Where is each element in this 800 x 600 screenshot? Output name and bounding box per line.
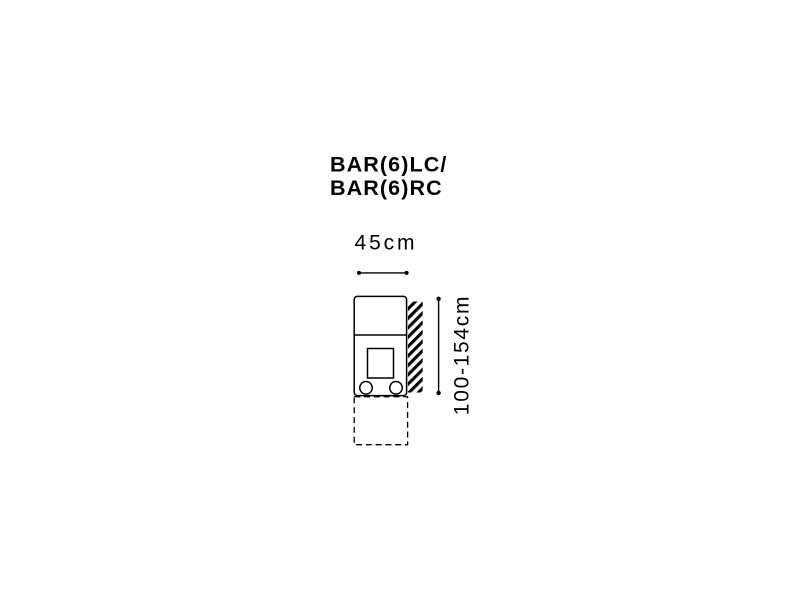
svg-text:BAR(6)RC: BAR(6)RC bbox=[330, 176, 443, 200]
svg-text:BAR(6)LC/: BAR(6)LC/ bbox=[330, 153, 447, 177]
svg-text:45cm: 45cm bbox=[355, 231, 418, 254]
svg-text:100-154cm: 100-154cm bbox=[450, 295, 473, 415]
